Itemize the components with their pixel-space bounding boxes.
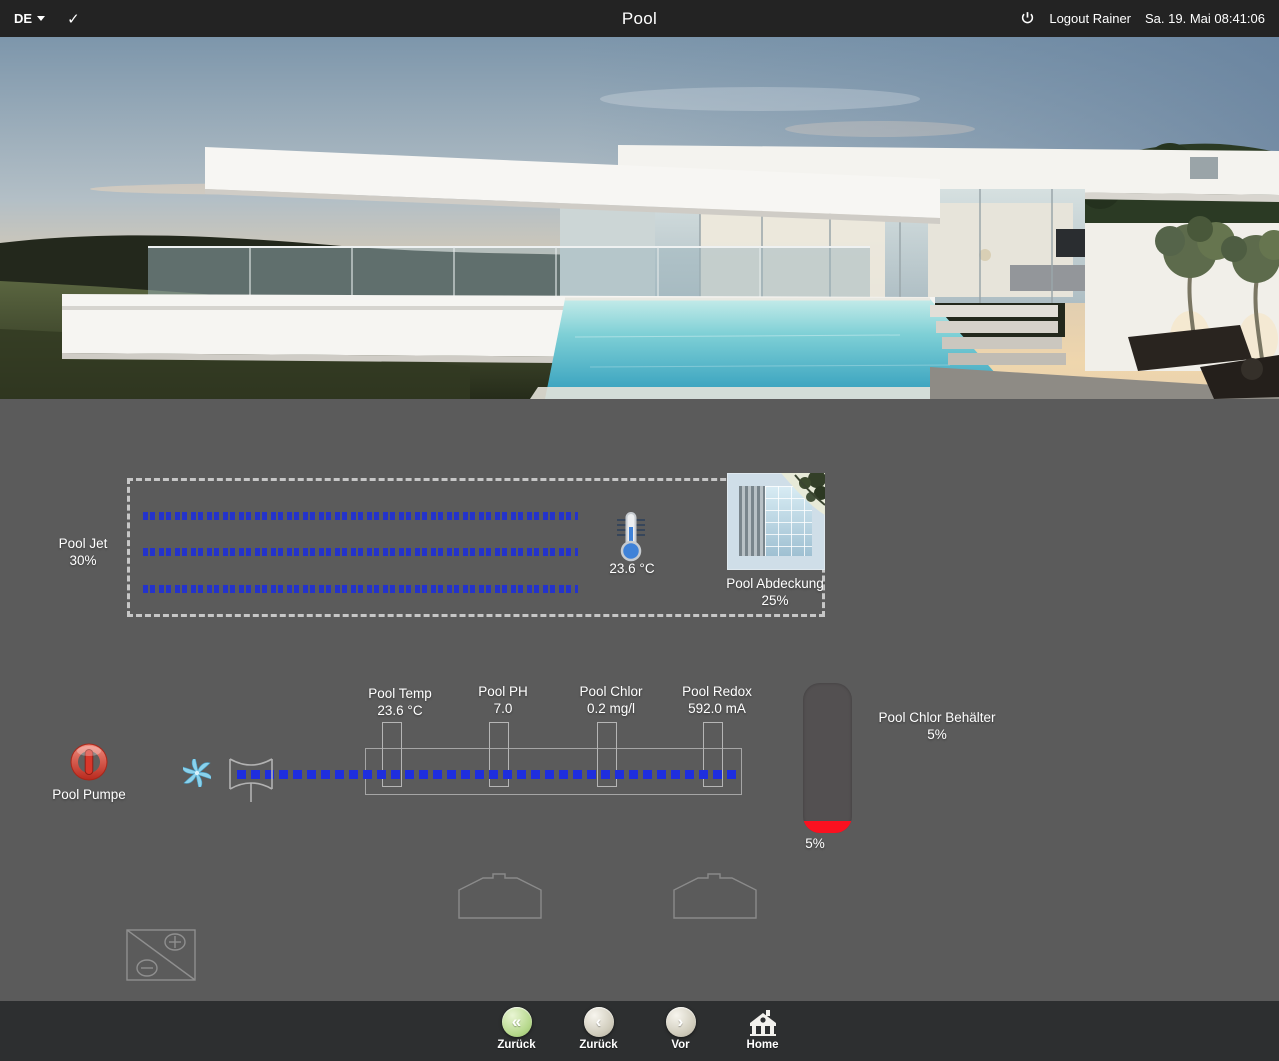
- sensor-ph: Pool PH 7.0: [443, 683, 563, 717]
- pool-cover-value: 25%: [692, 592, 858, 609]
- language-selector[interactable]: DE: [14, 11, 45, 26]
- jet-stream-1: [143, 512, 578, 520]
- chevron-left-icon: ‹: [584, 1007, 614, 1037]
- foliage-decoration: [773, 473, 825, 523]
- language-label: DE: [14, 11, 32, 26]
- nav-back-button[interactable]: ‹ Zurück: [570, 1007, 628, 1051]
- logout-button[interactable]: Logout Rainer: [1049, 11, 1131, 26]
- tank-level-fill: [803, 821, 852, 833]
- water-flow-line: [237, 770, 738, 779]
- sensor-chlor: Pool Chlor 0.2 mg/l: [551, 683, 671, 717]
- pool-page: DE ✓ Pool Logout Rainer Sa. 19. Mai 08:4…: [0, 0, 1279, 1061]
- chevron-down-icon: [37, 16, 45, 21]
- cover-blind-image: [739, 486, 765, 556]
- sensor-temp: Pool Temp 23.6 °C: [340, 685, 460, 719]
- bottom-navigation: « Zurück ‹ Zurück › Vor: [0, 1001, 1279, 1061]
- pump-power-button[interactable]: [68, 741, 110, 783]
- datetime-label: Sa. 19. Mai 08:41:06: [1145, 11, 1265, 26]
- pump-label: Pool Pumpe: [29, 786, 149, 803]
- nav-forward-button[interactable]: › Vor: [652, 1007, 710, 1051]
- tank-label: Pool Chlor Behälter 5%: [852, 709, 1022, 743]
- hero-photo: [0, 37, 1279, 399]
- jet-stream-3: [143, 585, 578, 593]
- pool-jet-label: Pool Jet 30%: [33, 535, 133, 569]
- home-icon: [746, 1009, 780, 1037]
- sensor-redox: Pool Redox 592.0 mA: [657, 683, 777, 717]
- tank-outline-shape-1: [458, 873, 542, 919]
- impeller-icon: [183, 759, 211, 787]
- pool-cover-control[interactable]: [727, 473, 825, 570]
- water-temperature-value: 23.6 °C: [582, 560, 682, 577]
- pool-cover-label: Pool Abdeckung 25%: [692, 575, 858, 609]
- check-icon[interactable]: ✓: [67, 10, 80, 28]
- house-pool-photo: [0, 37, 1279, 399]
- plus-minus-device-outline: [126, 929, 196, 981]
- chevron-right-icon: ›: [666, 1007, 696, 1037]
- nav-back-page-button[interactable]: « Zurück: [488, 1007, 546, 1051]
- pool-schematic: Pool Jet 30% 23.6 °C: [0, 399, 1279, 1001]
- valve-icon: [228, 756, 274, 804]
- jet-stream-2: [143, 548, 578, 556]
- tank-outline-shape-2: [673, 873, 757, 919]
- pool-jet-value: 30%: [33, 552, 133, 569]
- top-bar: DE ✓ Pool Logout Rainer Sa. 19. Mai 08:4…: [0, 0, 1279, 37]
- power-icon[interactable]: [1020, 11, 1035, 26]
- double-chevron-left-icon: «: [502, 1007, 532, 1037]
- chlorine-tank-gauge: [803, 683, 852, 833]
- tank-level-value: 5%: [790, 835, 840, 852]
- nav-home-button[interactable]: Home: [734, 1007, 792, 1051]
- thermometer-icon: [611, 510, 651, 562]
